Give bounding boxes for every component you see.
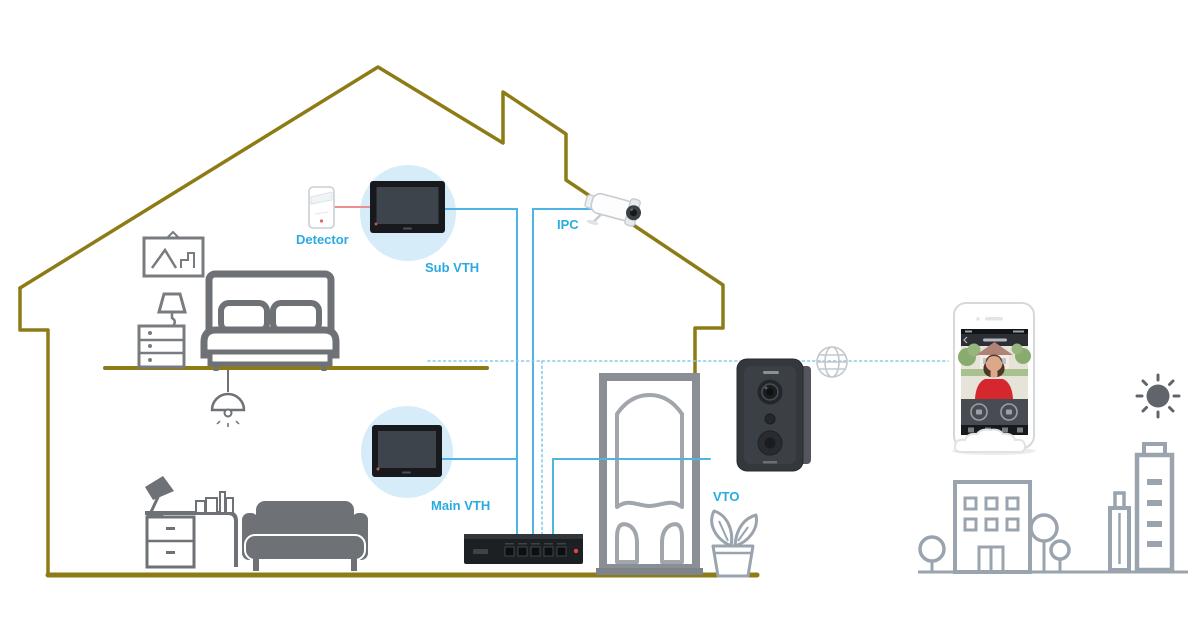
phone-video-feed — [958, 342, 1031, 399]
main-vth-monitor — [372, 425, 442, 477]
desk — [145, 492, 236, 567]
bed — [204, 274, 336, 371]
pendant-lamp — [212, 370, 244, 427]
bedroom-furniture — [139, 232, 336, 427]
potted-plant — [712, 511, 757, 576]
sub-vth-monitor — [370, 181, 445, 233]
subvth-to-switch-line — [444, 209, 517, 534]
nightstand — [139, 326, 184, 367]
table-lamp — [159, 294, 185, 326]
vto-doorbell — [737, 359, 811, 471]
tower-building — [1110, 444, 1172, 570]
desk-lamp — [145, 476, 174, 517]
office-building — [955, 482, 1030, 572]
diagram-canvas: Detector Sub VTH IPC Main VTH VTO — [0, 0, 1200, 630]
network-switch — [464, 534, 583, 564]
picture-frame — [144, 232, 203, 276]
desk-books — [196, 492, 233, 513]
house-left-wall — [20, 288, 48, 573]
internet-globe-icon — [817, 347, 847, 377]
ipc-camera — [580, 187, 644, 236]
front-door — [596, 373, 703, 575]
main-vth-label: Main VTH — [431, 498, 490, 513]
city-scene — [918, 430, 1188, 572]
detector-device — [309, 187, 334, 228]
vto-label: VTO — [713, 489, 740, 504]
sub-vth-label: Sub VTH — [425, 260, 479, 275]
phone-screen — [958, 329, 1031, 435]
ipc-label: IPC — [557, 217, 579, 232]
sofa — [242, 501, 368, 571]
detector-label: Detector — [296, 232, 349, 247]
living-room-furniture — [145, 476, 368, 571]
sun-icon — [1137, 375, 1179, 417]
switch-power-led — [574, 549, 578, 553]
